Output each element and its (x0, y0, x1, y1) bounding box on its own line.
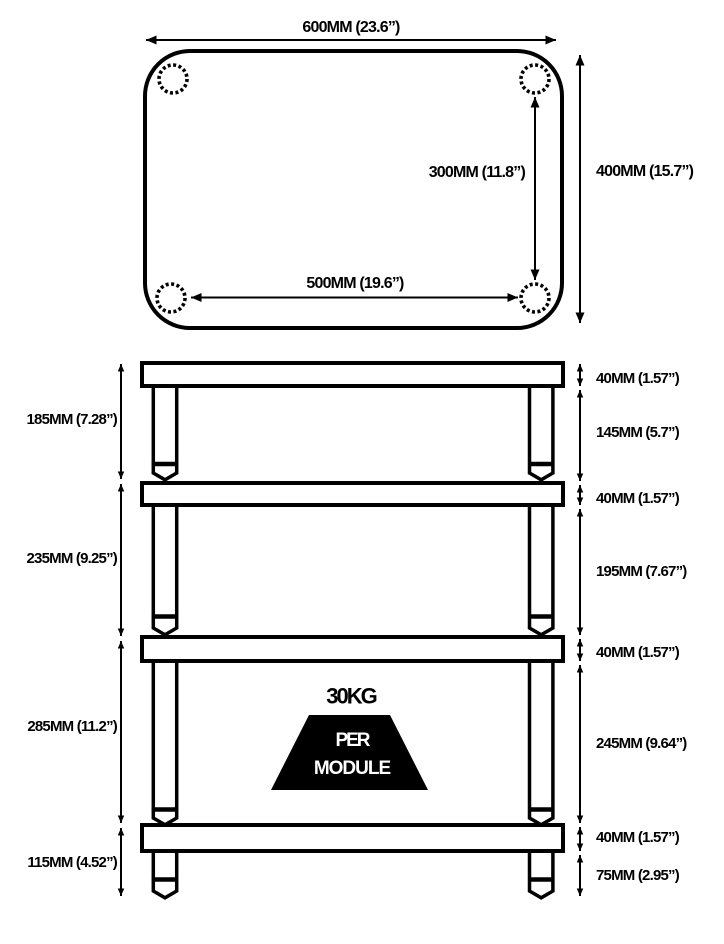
svg-text:300MM (11.8”): 300MM (11.8”) (429, 164, 526, 181)
svg-text:600MM (23.6”): 600MM (23.6”) (302, 19, 400, 36)
svg-text:145MM (5.7”): 145MM (5.7”) (596, 424, 680, 441)
svg-text:40MM (1.57”): 40MM (1.57”) (596, 370, 680, 387)
svg-text:40MM (1.57”): 40MM (1.57”) (596, 644, 680, 661)
svg-text:185MM (7.28”): 185MM (7.28”) (27, 411, 118, 428)
svg-text:195MM (7.67”): 195MM (7.67”) (596, 563, 687, 580)
svg-text:245MM (9.64”): 245MM (9.64”) (596, 735, 687, 752)
svg-text:400MM (15.7”): 400MM (15.7”) (596, 163, 694, 180)
svg-text:40MM (1.57”): 40MM (1.57”) (596, 490, 680, 507)
svg-text:235MM (9.25”): 235MM (9.25”) (27, 550, 118, 567)
svg-text:75MM (2.95”): 75MM (2.95”) (596, 867, 680, 884)
svg-text:30KG: 30KG (326, 684, 376, 709)
svg-text:500MM (19.6”): 500MM (19.6”) (306, 275, 404, 292)
svg-text:PER: PER (335, 730, 370, 751)
svg-text:115MM (4.52”): 115MM (4.52”) (27, 854, 117, 871)
svg-text:MODULE: MODULE (314, 758, 391, 779)
svg-text:40MM (1.57”): 40MM (1.57”) (596, 829, 680, 846)
svg-text:285MM (11.2”): 285MM (11.2”) (27, 718, 117, 735)
